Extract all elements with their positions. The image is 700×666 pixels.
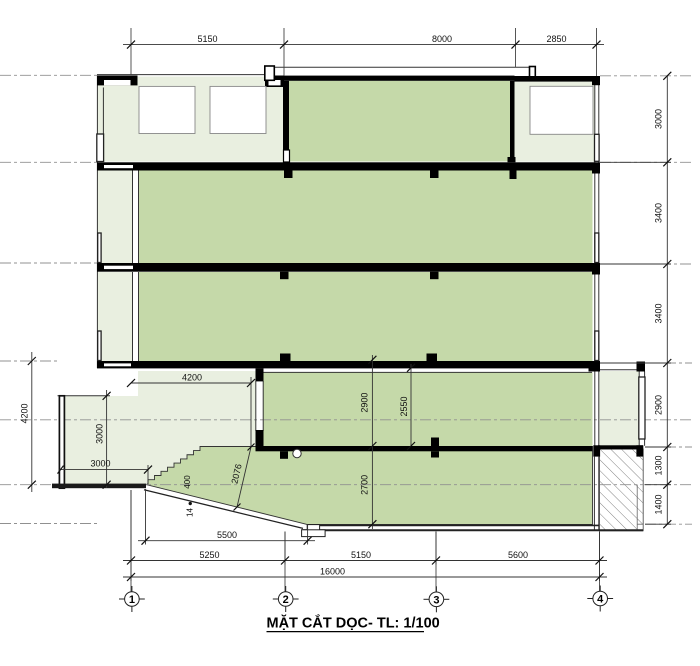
svg-text:16000: 16000 xyxy=(320,566,345,576)
svg-text:1400: 1400 xyxy=(654,494,664,514)
svg-text:4200: 4200 xyxy=(20,403,30,423)
svg-text:14 ●: 14 ● xyxy=(186,501,195,517)
svg-text:5600: 5600 xyxy=(508,550,528,560)
svg-text:3000: 3000 xyxy=(90,459,110,469)
svg-text:2900: 2900 xyxy=(654,395,664,415)
svg-text:2700: 2700 xyxy=(360,475,370,495)
svg-text:2900: 2900 xyxy=(360,393,370,413)
svg-text:2850: 2850 xyxy=(546,34,566,44)
svg-text:5500: 5500 xyxy=(217,530,237,540)
svg-text:1: 1 xyxy=(129,594,135,606)
svg-text:3000: 3000 xyxy=(654,109,664,129)
svg-text:5150: 5150 xyxy=(197,34,217,44)
svg-text:3400: 3400 xyxy=(654,303,664,323)
svg-text:3000: 3000 xyxy=(94,424,104,444)
svg-text:3400: 3400 xyxy=(654,203,664,223)
svg-text:8000: 8000 xyxy=(432,34,452,44)
svg-text:5250: 5250 xyxy=(199,550,219,560)
svg-text:400: 400 xyxy=(183,475,192,489)
svg-text:MẶT CẮT DỌC- TL: 1/100: MẶT CẮT DỌC- TL: 1/100 xyxy=(267,614,440,632)
svg-text:3: 3 xyxy=(433,594,439,606)
svg-text:4: 4 xyxy=(597,594,604,606)
svg-text:5150: 5150 xyxy=(351,550,371,560)
svg-text:1300: 1300 xyxy=(654,455,664,475)
svg-text:2550: 2550 xyxy=(399,396,409,416)
svg-text:4200: 4200 xyxy=(182,372,202,382)
svg-text:2: 2 xyxy=(283,594,289,606)
